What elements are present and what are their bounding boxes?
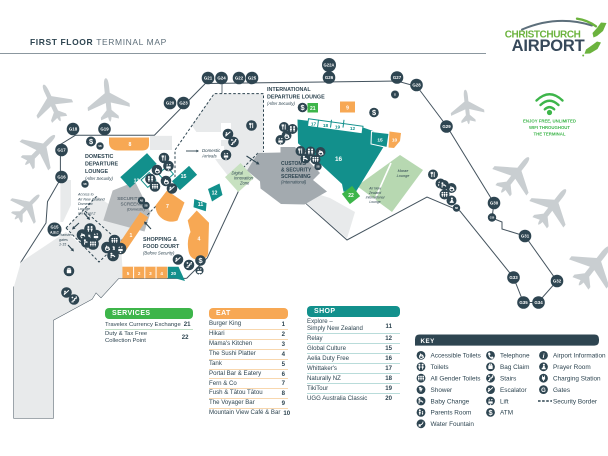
svg-text:7: 7 [166,204,169,210]
svg-text:Water Fountain: Water Fountain [431,421,475,428]
svg-text:G15: G15 [51,225,60,230]
svg-text:DOMESTIC: DOMESTIC [85,154,114,160]
svg-text:Prayer Room: Prayer Room [553,364,591,371]
svg-text:On Level 2: On Level 2 [78,212,95,216]
svg-text:A,B,C: A,B,C [50,231,59,235]
svg-text:Shower: Shower [431,387,454,394]
svg-text:$: $ [488,408,492,417]
svg-text:Accessible Toilets: Accessible Toilets [431,353,481,360]
svg-text:G32: G32 [553,279,562,284]
svg-text:16: 16 [335,156,343,163]
svg-text:Zealand: Zealand [368,191,381,195]
svg-text:G35: G35 [519,300,528,305]
svg-text:WIFI THROUGHOUT: WIFI THROUGHOUT [529,125,570,130]
svg-text:$: $ [198,256,202,265]
svg-text:(Domestic): (Domestic) [127,207,146,211]
svg-text:17: 17 [311,121,317,127]
svg-text:G28: G28 [412,83,421,88]
svg-text:Lounge: Lounge [78,207,90,211]
svg-text:Lounge: Lounge [369,200,380,204]
svg-text:Security Border: Security Border [553,398,598,405]
svg-text:22: 22 [348,193,354,199]
svg-text:$: $ [372,108,376,117]
svg-text:DEPARTURE: DEPARTURE [85,162,119,168]
svg-text:LOUNGE: LOUNGE [85,169,108,175]
svg-text:G29: G29 [442,124,451,129]
svg-text:G30: G30 [490,201,499,206]
svg-text:G22: G22 [235,76,244,81]
svg-text:4: 4 [160,271,163,276]
svg-text:SB: SB [144,204,148,207]
svg-text:G24: G24 [217,76,226,81]
svg-text:3: 3 [149,271,152,276]
svg-text:& SECURITY: & SECURITY [281,168,312,174]
svg-text:(After Security): (After Security) [85,176,114,181]
svg-text:G: G [394,93,396,97]
svg-text:G31: G31 [521,234,530,239]
svg-text:12: 12 [350,126,356,132]
svg-text:G22A: G22A [324,63,335,68]
svg-text:(Before Security): (Before Security) [143,251,175,256]
svg-text:Airport Information: Airport Information [553,353,606,360]
svg-text:G: G [541,388,546,394]
svg-text:Marae: Marae [398,169,409,173]
svg-text:15: 15 [377,138,383,144]
svg-text:12: 12 [134,179,140,185]
svg-text:Charging Station: Charging Station [553,376,601,383]
svg-text:10: 10 [392,138,398,144]
svg-text:Gates: Gates [553,387,570,394]
svg-text:20: 20 [171,271,177,276]
svg-text:8: 8 [129,142,132,148]
svg-text:$: $ [300,103,304,112]
svg-text:SB: SB [455,207,459,210]
svg-text:Toilets: Toilets [431,364,449,371]
svg-text:G33: G33 [509,275,518,280]
svg-text:Baby Change: Baby Change [431,398,470,405]
svg-text:9: 9 [346,106,349,112]
svg-text:All Gender Toilets: All Gender Toilets [431,376,481,383]
svg-text:G23: G23 [179,101,188,106]
svg-text:1: 1 [130,233,133,239]
svg-text:Escalator: Escalator [500,387,528,394]
svg-text:G18: G18 [69,127,78,132]
svg-text:Bag Claim: Bag Claim [500,364,529,371]
svg-text:SB: SB [316,165,320,168]
svg-text:AIRPORT: AIRPORT [512,37,585,55]
svg-text:Air New: Air New [368,187,381,191]
svg-text:4: 4 [198,237,201,243]
svg-text:Domestic: Domestic [202,148,221,153]
svg-text:Lift: Lift [500,398,509,405]
svg-text:G16: G16 [57,175,66,180]
svg-text:Zone: Zone [239,181,250,186]
svg-text:Parents Room: Parents Room [431,410,472,417]
svg-text:15: 15 [181,174,187,180]
svg-text:ATM: ATM [500,410,513,417]
svg-text:Air New Zealand: Air New Zealand [77,197,106,201]
svg-text:Stairs: Stairs [500,376,516,383]
svg-text:Access to: Access to [77,193,94,197]
svg-text:Telephone: Telephone [500,353,530,360]
svg-text:21: 21 [310,106,316,112]
svg-text:(After Security): (After Security) [267,101,296,106]
svg-text:THE TERMINAL: THE TERMINAL [534,132,566,137]
svg-text:International: International [366,196,385,200]
svg-text:18: 18 [323,123,329,129]
svg-text:11: 11 [198,202,204,208]
svg-text:G26: G26 [325,75,334,80]
svg-text:$: $ [89,137,93,146]
svg-text:SB: SB [83,183,87,186]
svg-text:G25: G25 [248,76,257,81]
svg-text:19: 19 [335,124,341,130]
svg-text:Arrivals: Arrivals [201,154,217,159]
svg-text:INTERNATIONAL: INTERNATIONAL [267,87,311,93]
svg-text:gates: gates [59,238,68,242]
svg-text:G21: G21 [204,76,213,81]
svg-text:G30: G30 [490,216,495,219]
svg-text:1-15: 1-15 [59,243,66,247]
svg-text:G34: G34 [534,300,543,305]
svg-text:SHOPPING &: SHOPPING & [143,237,177,243]
svg-text:Domestic: Domestic [78,202,93,206]
svg-text:Lounge: Lounge [397,174,410,178]
svg-text:KEY: KEY [421,338,436,345]
svg-text:(International): (International) [281,180,307,185]
svg-text:DEPARTURE LOUNGE: DEPARTURE LOUNGE [267,95,325,101]
svg-text:i: i [543,353,545,360]
svg-text:G19: G19 [100,127,109,132]
svg-text:G27: G27 [393,75,402,80]
svg-text:FOOD COURT: FOOD COURT [143,244,180,250]
svg-text:G20: G20 [166,101,175,106]
svg-text:12: 12 [212,191,218,197]
svg-text:5: 5 [127,271,130,276]
svg-text:2: 2 [138,271,141,276]
svg-text:G17: G17 [57,148,66,153]
svg-text:AB: AB [140,199,144,202]
svg-text:ENJOY FREE, UNLIMITED: ENJOY FREE, UNLIMITED [523,119,576,124]
svg-text:SB: SB [98,145,102,148]
svg-text:Transfer: Transfer [59,233,73,237]
